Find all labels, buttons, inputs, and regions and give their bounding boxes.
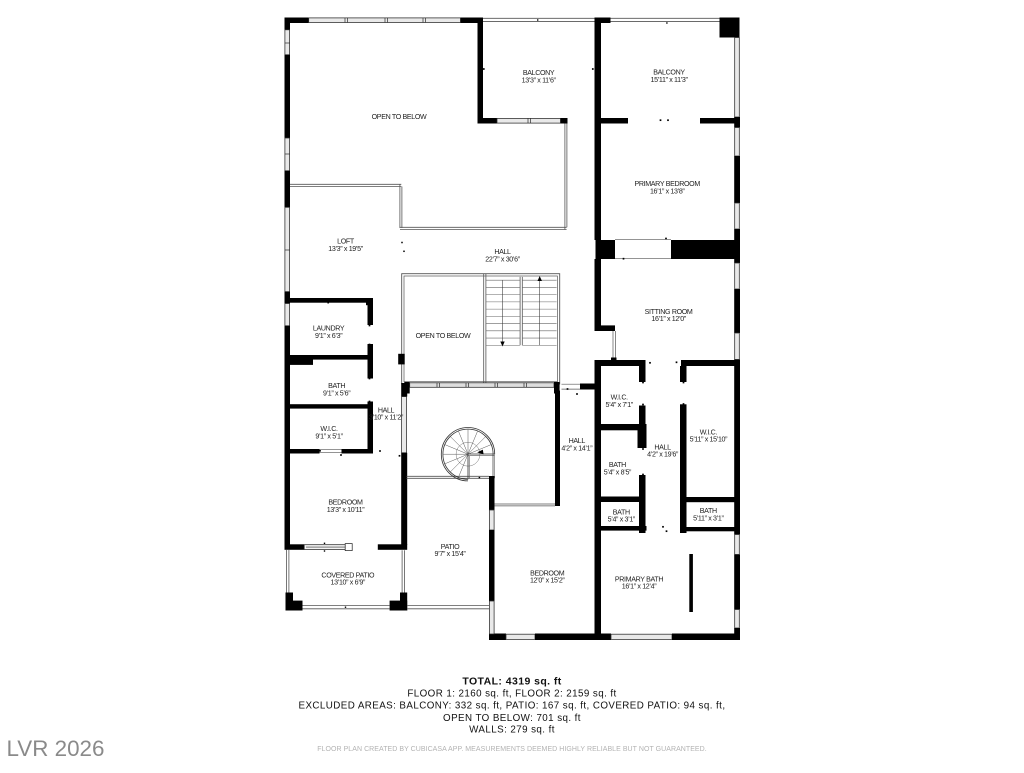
svg-text:9’1” x 6’3”: 9’1” x 6’3”	[315, 332, 343, 340]
svg-text:13’3” x 10’11”: 13’3” x 10’11”	[327, 506, 366, 514]
svg-text:9’1” x 5’1”: 9’1” x 5’1”	[315, 432, 343, 440]
svg-text:16’1” x 13’8”: 16’1” x 13’8”	[650, 187, 685, 195]
svg-text:16’1” x 12’4”: 16’1” x 12’4”	[622, 583, 657, 591]
svg-text:13’3” x 11’6”: 13’3” x 11’6”	[522, 76, 557, 84]
svg-text:OPEN TO BELOW: 701 sq. ft: OPEN TO BELOW: 701 sq. ft	[443, 713, 581, 724]
svg-text:3’10” x 11’2”: 3’10” x 11’2”	[369, 414, 404, 422]
svg-text:TOTAL: 4319 sq. ft: TOTAL: 4319 sq. ft	[462, 675, 561, 687]
svg-text:4’2” x 19’6”: 4’2” x 19’6”	[647, 451, 679, 459]
svg-text:FLOOR PLAN CREATED BY CUBICASA: FLOOR PLAN CREATED BY CUBICASA APP. MEAS…	[317, 746, 707, 753]
svg-text:5’4” x 3’1”: 5’4” x 3’1”	[608, 516, 636, 524]
svg-text:5’11” x 15’10”: 5’11” x 15’10”	[690, 436, 729, 444]
svg-text:16’1” x 12’0”: 16’1” x 12’0”	[651, 315, 686, 323]
svg-text:22’7” x 30’6”: 22’7” x 30’6”	[485, 255, 520, 263]
svg-text:15’11” x 11’3”: 15’11” x 11’3”	[650, 76, 688, 84]
svg-text:4’2” x 14’1”: 4’2” x 14’1”	[561, 445, 593, 453]
svg-text:FLOOR 1: 2160 sq. ft, FLOOR 2:: FLOOR 1: 2160 sq. ft, FLOOR 2: 2159 sq. …	[407, 689, 616, 700]
svg-text:13’3” x 19’5”: 13’3” x 19’5”	[328, 245, 363, 253]
svg-text:WALLS: 279 sq. ft: WALLS: 279 sq. ft	[469, 725, 555, 736]
svg-text:OPEN TO BELOW: OPEN TO BELOW	[372, 113, 427, 121]
svg-text:5’4” x 8’5”: 5’4” x 8’5”	[604, 468, 632, 476]
svg-text:5’11” x 3’1”: 5’11” x 3’1”	[693, 514, 724, 522]
svg-text:EXCLUDED AREAS: BALCONY: 332 s: EXCLUDED AREAS: BALCONY: 332 sq. ft, PAT…	[299, 701, 726, 712]
svg-text:5’4” x 7’1”: 5’4” x 7’1”	[606, 401, 634, 409]
svg-text:LVR 2026: LVR 2026	[7, 736, 105, 761]
svg-text:9’1” x 5’6”: 9’1” x 5’6”	[323, 389, 351, 397]
svg-text:13’10” x 6’9”: 13’10” x 6’9”	[331, 579, 366, 587]
svg-text:9’7” x 15’4”: 9’7” x 15’4”	[435, 550, 467, 558]
svg-text:12’0” x 15’2”: 12’0” x 15’2”	[530, 577, 565, 585]
svg-text:OPEN TO BELOW: OPEN TO BELOW	[416, 332, 471, 340]
